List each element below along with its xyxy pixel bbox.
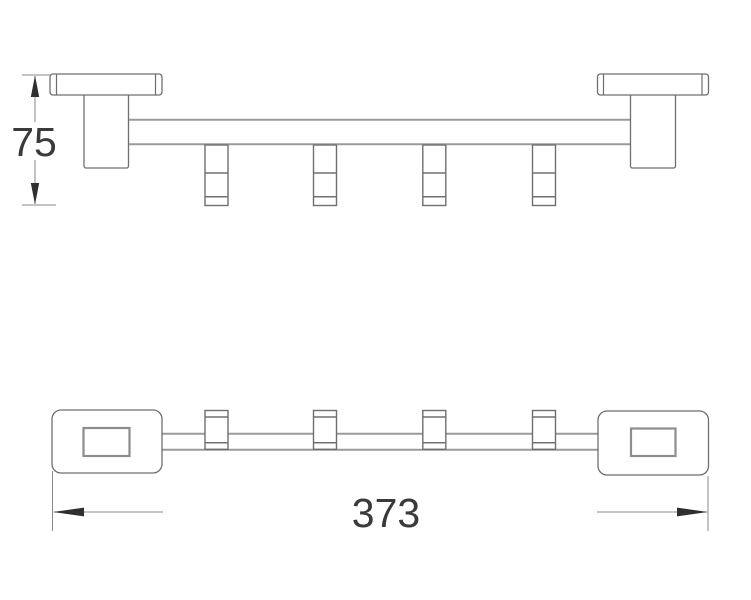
top-hook-4 [533, 411, 556, 450]
front-hook-2 [314, 145, 337, 206]
arrow-down-icon [31, 183, 39, 205]
bracket-post [84, 94, 129, 168]
top-right-plate [598, 411, 709, 475]
top-hook-1 [205, 411, 228, 450]
front-hook-1 [205, 145, 228, 206]
top-view [52, 410, 709, 475]
top-hook-2 [314, 411, 337, 450]
height-dimension-label: 75 [11, 119, 57, 165]
front-hook-3 [423, 145, 446, 206]
front-left-bracket [50, 74, 162, 168]
front-view [50, 74, 709, 206]
front-hook-4 [533, 145, 556, 206]
post-cross-section [84, 428, 130, 456]
bracket-cap [598, 74, 709, 95]
post-cross-section [631, 429, 676, 457]
arrow-up-icon [31, 76, 39, 98]
height-dimension: 75 [11, 75, 57, 205]
technical-drawing-page: 75 [0, 0, 751, 600]
arrow-right-icon [677, 508, 708, 517]
arrow-left-icon [53, 508, 84, 517]
drawing-svg: 75 [0, 0, 751, 600]
bracket-post [631, 94, 676, 168]
top-hook-3 [423, 411, 446, 450]
front-right-bracket [598, 74, 709, 168]
bracket-cap [50, 74, 162, 95]
length-dimension: 373 [53, 471, 709, 536]
top-left-plate [52, 410, 162, 473]
length-dimension-label: 373 [352, 490, 420, 536]
